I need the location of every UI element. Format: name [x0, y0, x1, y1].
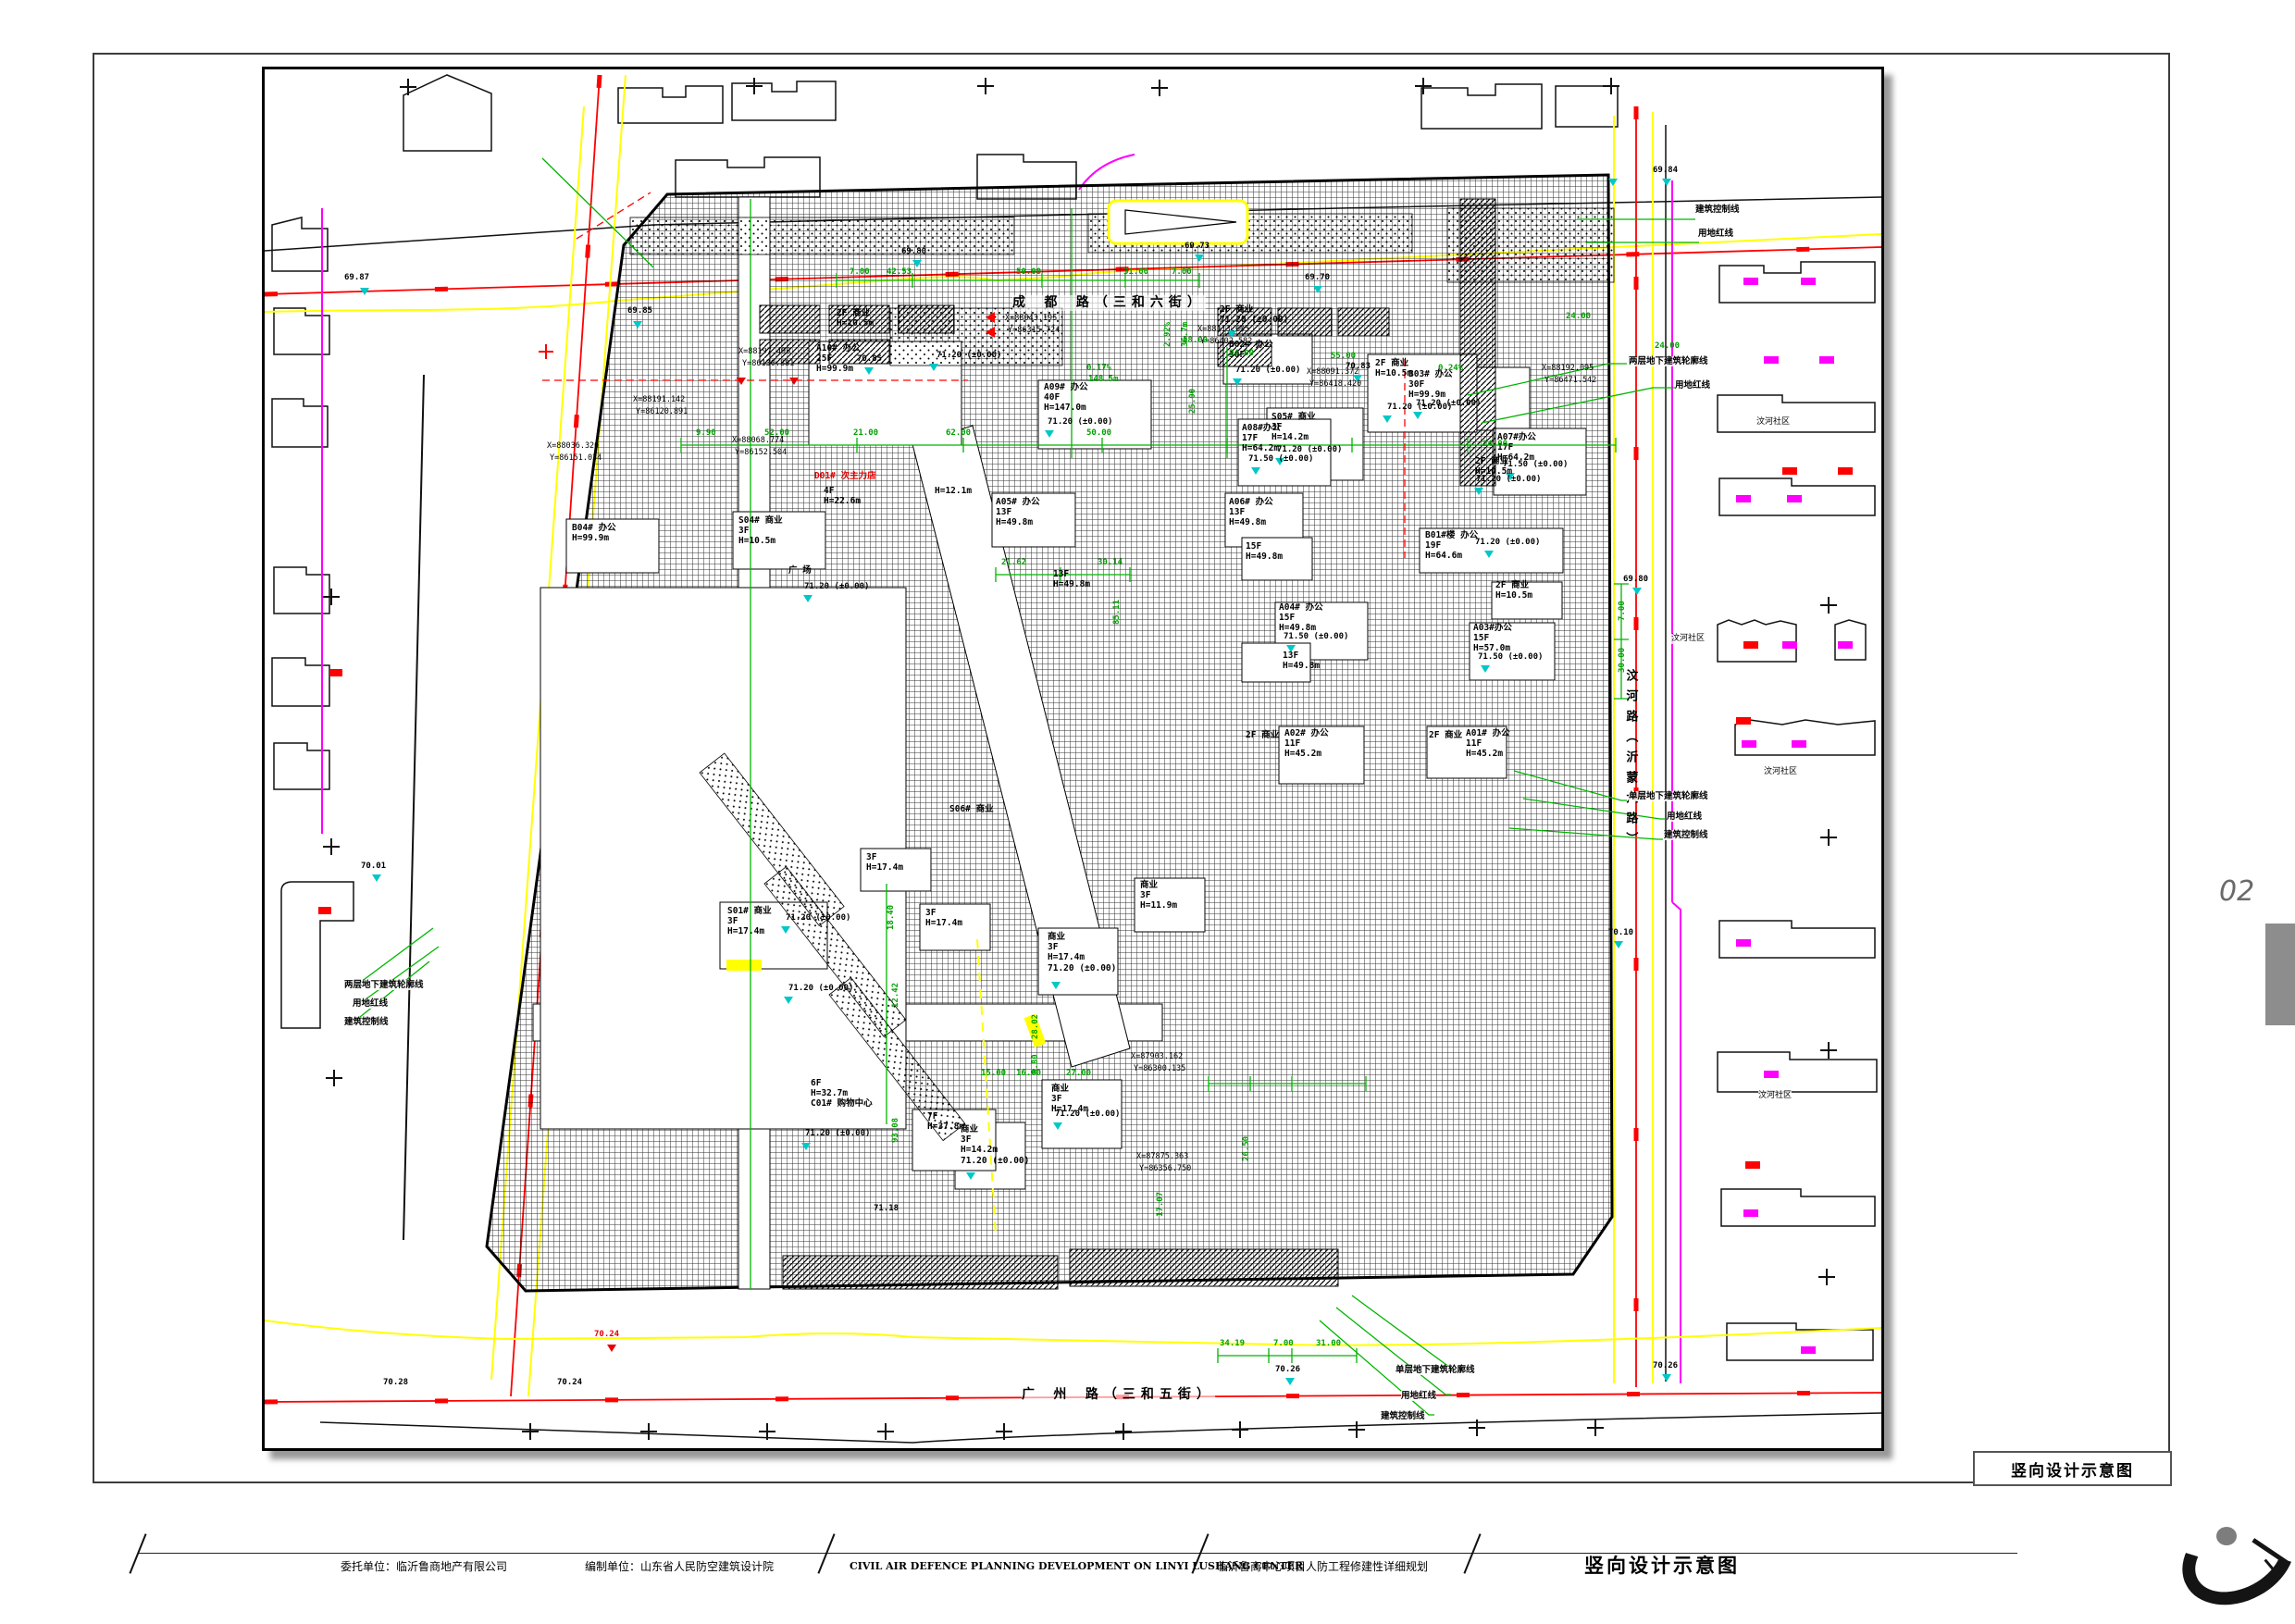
elevation-marker	[1632, 588, 1642, 595]
elevation-marker	[633, 321, 642, 329]
plan-label: 52.00	[764, 428, 789, 439]
plan-label: 71.20 (±0.00)	[1475, 538, 1540, 548]
elevation-marker	[1383, 415, 1392, 423]
plan-label: 9.90	[696, 428, 716, 439]
plan-label: 7.00	[850, 267, 870, 278]
plan-label: 建筑控制线	[1695, 205, 1740, 215]
elevation-marker	[1474, 488, 1483, 495]
plan-label: A05# 办公 13F H=49.8m	[996, 497, 1040, 528]
plan-label: 70.24	[594, 1330, 619, 1340]
elevation-marker	[789, 378, 799, 385]
plan-label: 24.00	[1566, 312, 1591, 322]
elevation-marker	[607, 1345, 616, 1352]
plan-label: X=87903.162	[1131, 1052, 1183, 1061]
plan-labels-layer: 成 都 路（三和六街）广 州 路（三和五街）汶河路（沂蒙六路）69.8769.8…	[265, 69, 1881, 1448]
plan-label: 单层地下建筑轮廓线	[1396, 1365, 1475, 1375]
plan-label: 21.00	[853, 428, 878, 439]
plan-label: 21.62	[1001, 558, 1026, 568]
plan-label: 24.00	[1655, 341, 1680, 352]
plan-label: H=12.1m	[935, 486, 972, 496]
plan-label: 71.20 (±0.00)	[805, 1129, 870, 1139]
plan-label: 2F 商业 71.20 (±0.00)	[1220, 304, 1288, 325]
plan-label: 单层地下建筑轮廓线	[1629, 791, 1708, 801]
plan-label: 93.08	[891, 1118, 901, 1143]
logo-dot	[2216, 1527, 2237, 1545]
plan-label: 汶河路（沂蒙六路）	[1623, 669, 1637, 852]
titlebar-divider	[1463, 1533, 1481, 1573]
plan-label: 2F 商业 H=10.5m	[1375, 358, 1412, 378]
elevation-marker	[966, 1172, 975, 1180]
elevation-marker	[372, 874, 381, 882]
plan-label: Y=86418.420	[1309, 379, 1361, 389]
elevation-marker	[1045, 430, 1054, 438]
project-name-cn: 临沂鲁商中心项目人防工程修建性详细规划	[1217, 1558, 1428, 1574]
plan-label: 建筑控制线	[1381, 1411, 1425, 1421]
plan-label: 13F H=49.8m	[1053, 569, 1090, 589]
plan-label: 广 场	[788, 565, 812, 576]
plan-label: 69.84	[1653, 166, 1678, 176]
plan-label: 3F H=17.4m	[866, 852, 903, 873]
plan-label: 31.00	[1316, 1339, 1341, 1349]
elevation-marker	[801, 1143, 811, 1150]
plan-label: B03# 办公 30F H=99.9m	[1408, 369, 1453, 401]
page-number: 02	[2219, 875, 2254, 908]
plan-label: 71.18	[874, 1204, 899, 1214]
plan-label: X=88113.605	[1197, 325, 1249, 334]
plan-label: 71.20 (±0.00)	[788, 984, 853, 994]
plan-label: A03#办公 15F H=57.0m	[1473, 623, 1512, 654]
plan-label: 用地红线	[353, 998, 388, 1009]
plan-label: S06# 商业	[949, 804, 994, 814]
plan-label: 汶河社区	[1671, 634, 1705, 644]
plan-label: 用地红线	[1698, 229, 1733, 239]
plan-label: 30.00	[1618, 648, 1628, 673]
plan-label: Y=86151.034	[550, 453, 602, 463]
plan-label: 用地红线	[1401, 1391, 1436, 1401]
side-tab-marker	[2265, 924, 2295, 1025]
plan-label: 商业 3F H=14.2m 71.20 (±0.00)	[961, 1124, 1029, 1166]
elevation-marker	[1195, 254, 1204, 262]
plan-label: 70.01	[361, 862, 386, 872]
client-unit: 委托单位：临沂鲁商地产有限公司	[341, 1558, 507, 1574]
plan-label: 8.80	[1031, 1054, 1041, 1074]
plan-label: 42.53	[887, 267, 912, 278]
plan-label: 50.00	[1086, 428, 1111, 439]
plan-label: 27.00	[1066, 1069, 1091, 1079]
plan-label: 70.10	[1608, 928, 1633, 938]
plan-label: Y=86471.542	[1544, 376, 1596, 385]
plan-label: A06# 办公 13F H=49.8m	[1229, 497, 1273, 528]
elevation-marker	[929, 364, 938, 371]
plan-label: 71.20 (±0.00)	[786, 913, 850, 924]
plan-label: A10# 办公 25F H=99.9m	[816, 343, 861, 375]
plan-label: 25.00	[1188, 389, 1198, 414]
plan-label: 55.00	[1331, 352, 1356, 362]
elevation-marker	[803, 595, 813, 602]
plan-label: 商业 3F H=17.4m	[1051, 1084, 1088, 1115]
elevation-marker	[781, 926, 790, 934]
plan-label: 4F H=22.6m	[824, 486, 861, 506]
plan-label: 70.26	[1653, 1361, 1678, 1371]
plan-label: A04# 办公 15F H=49.8m	[1279, 602, 1323, 634]
plan-label: 汶河社区	[1756, 417, 1790, 428]
plan-label: A09# 办公 40F H=147.0m	[1044, 382, 1088, 414]
plan-label: 商业 3F H=11.9m	[1140, 880, 1177, 911]
plan-label: 商业 3F H=17.4m 71.20 (±0.00)	[1048, 932, 1116, 973]
plan-label: 85.11	[1112, 600, 1123, 625]
plan-label: 15.00	[981, 1069, 1006, 1079]
elevation-marker	[1608, 179, 1618, 186]
plan-label: B01#楼 办公 19F H=64.6m	[1425, 530, 1478, 562]
plan-label: 34.19	[1220, 1339, 1245, 1349]
plan-label: 广 州 路（三和五街）	[1022, 1387, 1215, 1403]
elevation-marker	[864, 367, 874, 375]
elevation-marker	[1285, 1378, 1295, 1385]
plan-label: 24.00	[1229, 349, 1254, 359]
plan-label: Y=86152.504	[735, 448, 787, 457]
plan-label: 2F 商业	[1246, 730, 1279, 740]
sheet-corner-title: 竖向设计示意图	[1973, 1451, 2172, 1486]
plan-label: B04# 办公 H=99.9m	[572, 523, 616, 543]
plan-label: 7.00	[1172, 267, 1192, 278]
plan-label: 两层地下建筑轮廓线	[344, 980, 424, 990]
plan-label: A01# 办公 11F H=45.2m	[1466, 728, 1510, 760]
plan-label: 71.20 (±0.00)	[1235, 366, 1300, 376]
titlebar-divider	[129, 1533, 146, 1573]
plan-label: 2F 商业 H=10.5m	[1495, 580, 1532, 601]
plan-label: 0.24%	[1438, 364, 1463, 374]
plan-label: 69.70	[1305, 273, 1330, 283]
plan-label: 建筑控制线	[344, 1017, 389, 1027]
plan-label: 24.00	[1482, 440, 1507, 450]
elevation-marker	[1614, 941, 1623, 948]
elevation-marker	[784, 997, 793, 1004]
plan-label: 69.80	[901, 247, 926, 257]
plan-label: 18.40	[887, 905, 897, 930]
plan-label: 69.85	[627, 306, 652, 316]
plan-label: 0.17%	[1086, 364, 1111, 374]
plan-label: 50.00	[1016, 267, 1041, 278]
plan-label: Y=86120.891	[636, 407, 688, 416]
plan-label: 71.20 (±0.00)	[804, 582, 869, 592]
elevation-marker	[1313, 286, 1322, 293]
plan-label: S04# 商业 3F H=10.5m	[738, 515, 783, 547]
plan-label: 3F H=17.4m	[925, 908, 962, 928]
plan-label: Y=86402.582	[1200, 337, 1252, 346]
plan-label: Y=86130.881	[742, 359, 794, 368]
plan-label: 148.5m	[1088, 375, 1119, 385]
plan-label: 36.7m	[1181, 322, 1191, 347]
plan-label: 13F H=49.8m	[1283, 651, 1320, 671]
plan-label: 用地红线	[1675, 380, 1710, 391]
plan-label: X=88192.095	[1542, 364, 1594, 373]
plan-label: 成 都 路（三和六街）	[1012, 295, 1206, 311]
plan-label: 70.24	[557, 1378, 582, 1388]
plan-label: 70.85	[857, 354, 882, 365]
plan-label: 28.02	[1031, 1014, 1041, 1039]
company-logo	[2168, 1488, 2295, 1618]
plan-label: Y=86356.750	[1139, 1164, 1191, 1173]
plan-label: X=88091.372	[1307, 367, 1358, 377]
plan-label: 71.50 (±0.00)	[1248, 454, 1313, 465]
plan-label: 15F H=49.8m	[1246, 541, 1283, 562]
plan-label: 汶河社区	[1764, 767, 1797, 777]
plan-label: 6F H=32.7m C01# 购物中心	[811, 1078, 873, 1110]
plan-label: X=88036.320	[547, 441, 599, 451]
plan-label: 7.00	[1273, 1339, 1294, 1349]
plan-label: 30.14	[1098, 558, 1123, 568]
titlebar-divider	[817, 1533, 835, 1573]
elevation-marker	[1662, 179, 1671, 186]
plan-label: X=87875.363	[1136, 1152, 1188, 1161]
sheet-corner-title-text: 竖向设计示意图	[2011, 1457, 2134, 1481]
plan-label: X=88043.195	[1005, 314, 1057, 323]
plan-label: Y=86300.135	[1134, 1064, 1185, 1073]
plan-label: 70.26	[1275, 1365, 1300, 1375]
elevation-marker	[1413, 412, 1422, 419]
plan-label: 26.50	[1242, 1136, 1252, 1161]
elevation-marker	[1662, 1374, 1671, 1382]
design-unit: 编制单位：山东省人民防空建筑设计院	[585, 1558, 774, 1574]
plan-label: 69.87	[344, 273, 369, 283]
plan-label: 70.28	[383, 1378, 408, 1388]
plan-label: 7.00	[1618, 601, 1628, 621]
plan-label: 2F 商业	[1429, 730, 1462, 740]
plan-label: 69.80	[1623, 575, 1648, 585]
elevation-marker	[912, 260, 922, 267]
plan-label: 2F 商业 H=10.5m	[837, 308, 874, 329]
plan-label: 31.00	[1123, 267, 1148, 278]
plan-label: A08#办公 17F H=64.2m	[1242, 423, 1281, 454]
drawing-title: 竖向设计示意图	[1584, 1551, 1740, 1579]
elevation-marker	[360, 288, 369, 295]
plan-label: 71.20 (±0.00)	[1048, 417, 1112, 428]
plan-label: D01# 次主力店	[814, 471, 876, 481]
elevation-marker	[737, 378, 746, 385]
plan-label: 62.00	[946, 428, 971, 439]
screenshot-root: { "sheet": { "page_number": "02", "corne…	[0, 0, 2295, 1623]
plan-label: 69.73	[1185, 242, 1210, 252]
plan-label: 17.07	[1156, 1192, 1166, 1217]
plan-label: S01# 商业 3F H=17.4m	[727, 906, 772, 937]
plan-label: 7F H=37.8m	[927, 1111, 964, 1132]
elevation-marker	[1481, 665, 1490, 673]
plan-label: 两层地下建筑轮廓线	[1629, 356, 1708, 366]
elevation-marker	[1053, 1122, 1062, 1130]
plan-label: X=88197.498	[738, 347, 790, 356]
plan-label: X=88191.142	[633, 395, 685, 404]
elevation-marker	[1251, 467, 1260, 475]
plan-label: 建筑控制线	[1664, 830, 1708, 840]
elevation-marker	[1051, 982, 1061, 989]
plan-drawing-frame: 成 都 路（三和六街）广 州 路（三和五街）汶河路（沂蒙六路）69.8769.8…	[262, 67, 1884, 1451]
elevation-marker	[1484, 551, 1494, 558]
plan-label: 2.92%	[1163, 322, 1173, 347]
plan-label: Y=86315.724	[1008, 326, 1060, 335]
plan-label: 汶河社区	[1758, 1091, 1792, 1101]
elevation-marker	[1233, 378, 1242, 386]
plan-label: 用地红线	[1667, 812, 1702, 822]
plan-label: 12.42	[891, 983, 901, 1008]
plan-label: A02# 办公 11F H=45.2m	[1284, 728, 1329, 760]
plan-label: 71.20 (±0.00)	[937, 351, 1001, 361]
